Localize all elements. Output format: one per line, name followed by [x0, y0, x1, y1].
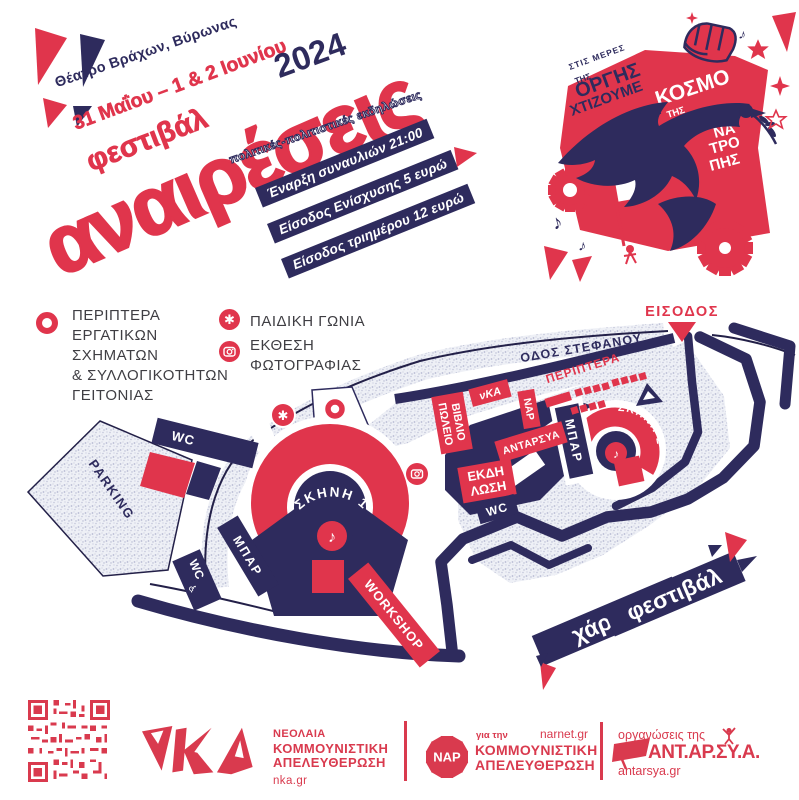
antarsya-url[interactable]: antarsya.gr: [618, 764, 681, 778]
nar-logo: ΝΑΡ: [424, 734, 470, 780]
figure-icon: [720, 727, 738, 745]
map-kids-icon: ✱: [270, 402, 296, 428]
nka-line: ΑΠΕΛΕΥΘΕΡΩΣΗ: [273, 756, 388, 771]
festival-map: PARKING ΟΔΟΣ ΣΤΕΦΑΝΟΥ ♪: [0, 294, 799, 700]
map-title-band2: φεστιβάλ: [602, 552, 745, 637]
svg-text:♪: ♪: [577, 237, 587, 255]
festival-emblem: ΣΤΙΣ ΜΕΡΕΣ ΤΗΣ ΟΡΓΗΣ ΧΤΙΖΟΥΜΕ ΤΟΝ ΚΟΣΜΟ …: [540, 8, 799, 293]
antarsya-name: ΑΝΤ.ΑΡ.ΣΥ.Α.: [648, 742, 760, 764]
asterisk-icon: ✱: [278, 408, 289, 423]
nka-url[interactable]: nka.gr: [273, 774, 388, 789]
nka-logo: [142, 724, 258, 778]
music-note-icon: ♪: [613, 447, 619, 461]
nka-logo-text: νΚΑ: [0, 0, 1, 1]
nar-line: ΚΟΜΜΟΥΝΙΣΤΙΚΗ: [475, 742, 597, 758]
stage1-stage-block: [312, 560, 344, 593]
map-photo-icon: [406, 463, 428, 485]
festival-poster: Θέατρο Βράχων, Βύρωνας 31 Μαΐου – 1 & 2 …: [0, 0, 799, 800]
nka-line: ΚΟΜΜΟΥΝΙΣΤΙΚΗ: [273, 742, 388, 757]
nar-line: ΑΠΕΛΕΥΘΕΡΩΣΗ: [475, 757, 595, 773]
svg-text:♪: ♪: [550, 211, 565, 235]
footer-divider: [600, 722, 603, 780]
map-kiosk-icon: [322, 396, 348, 422]
music-note-icon: ♪: [328, 529, 336, 546]
qr-code[interactable]: [28, 700, 110, 782]
svg-text:♪: ♪: [737, 25, 748, 42]
footer-divider: [404, 721, 407, 781]
entrance-label: ΕΙΣΟΔΟΣ: [645, 304, 719, 320]
nar-logo-text: ΝΑΡ: [433, 750, 461, 765]
nar-tagline: για την: [476, 730, 508, 741]
nar-url[interactable]: narnet.gr: [540, 727, 588, 741]
nka-name-block: ΝΕΟΛΑΙΑ ΚΟΜΜΟΥΝΙΣΤΙΚΗ ΑΠΕΛΕΥΘΕΡΩΣΗ nka.g…: [273, 727, 388, 788]
stage2-booth: [614, 456, 645, 487]
badge-arrow-icon: [450, 142, 484, 172]
nka-line: ΝΕΟΛΑΙΑ: [273, 727, 388, 742]
